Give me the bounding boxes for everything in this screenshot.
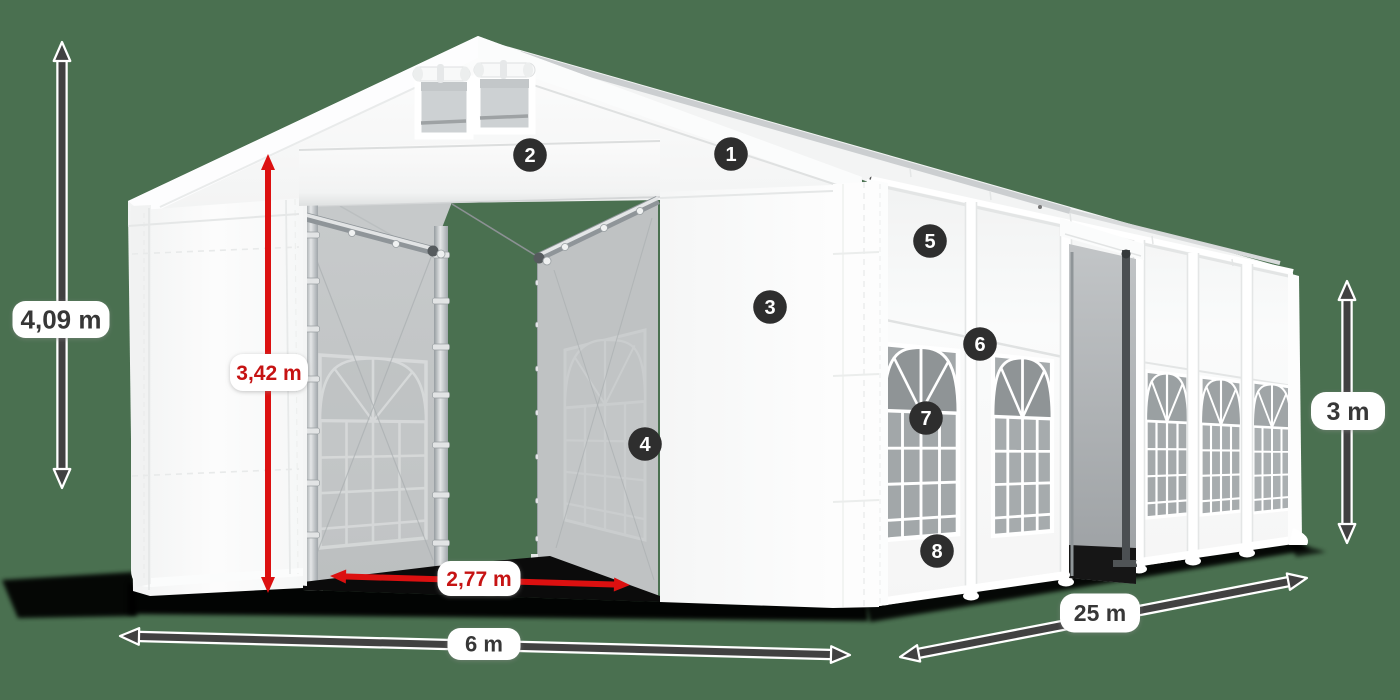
svg-text:4,09 m: 4,09 m <box>21 305 102 335</box>
svg-text:3,42 m: 3,42 m <box>236 362 301 385</box>
svg-text:25 m: 25 m <box>1074 600 1126 626</box>
svg-text:7: 7 <box>920 408 931 430</box>
svg-text:6 m: 6 m <box>465 632 503 657</box>
svg-text:2: 2 <box>524 145 535 167</box>
svg-text:3: 3 <box>764 297 775 319</box>
svg-text:3 m: 3 m <box>1326 398 1369 426</box>
svg-text:5: 5 <box>924 231 935 253</box>
svg-text:4: 4 <box>639 434 651 456</box>
svg-text:8: 8 <box>931 541 942 563</box>
svg-text:2,77 m: 2,77 m <box>446 568 511 591</box>
svg-text:1: 1 <box>725 144 736 166</box>
svg-text:6: 6 <box>974 334 985 356</box>
